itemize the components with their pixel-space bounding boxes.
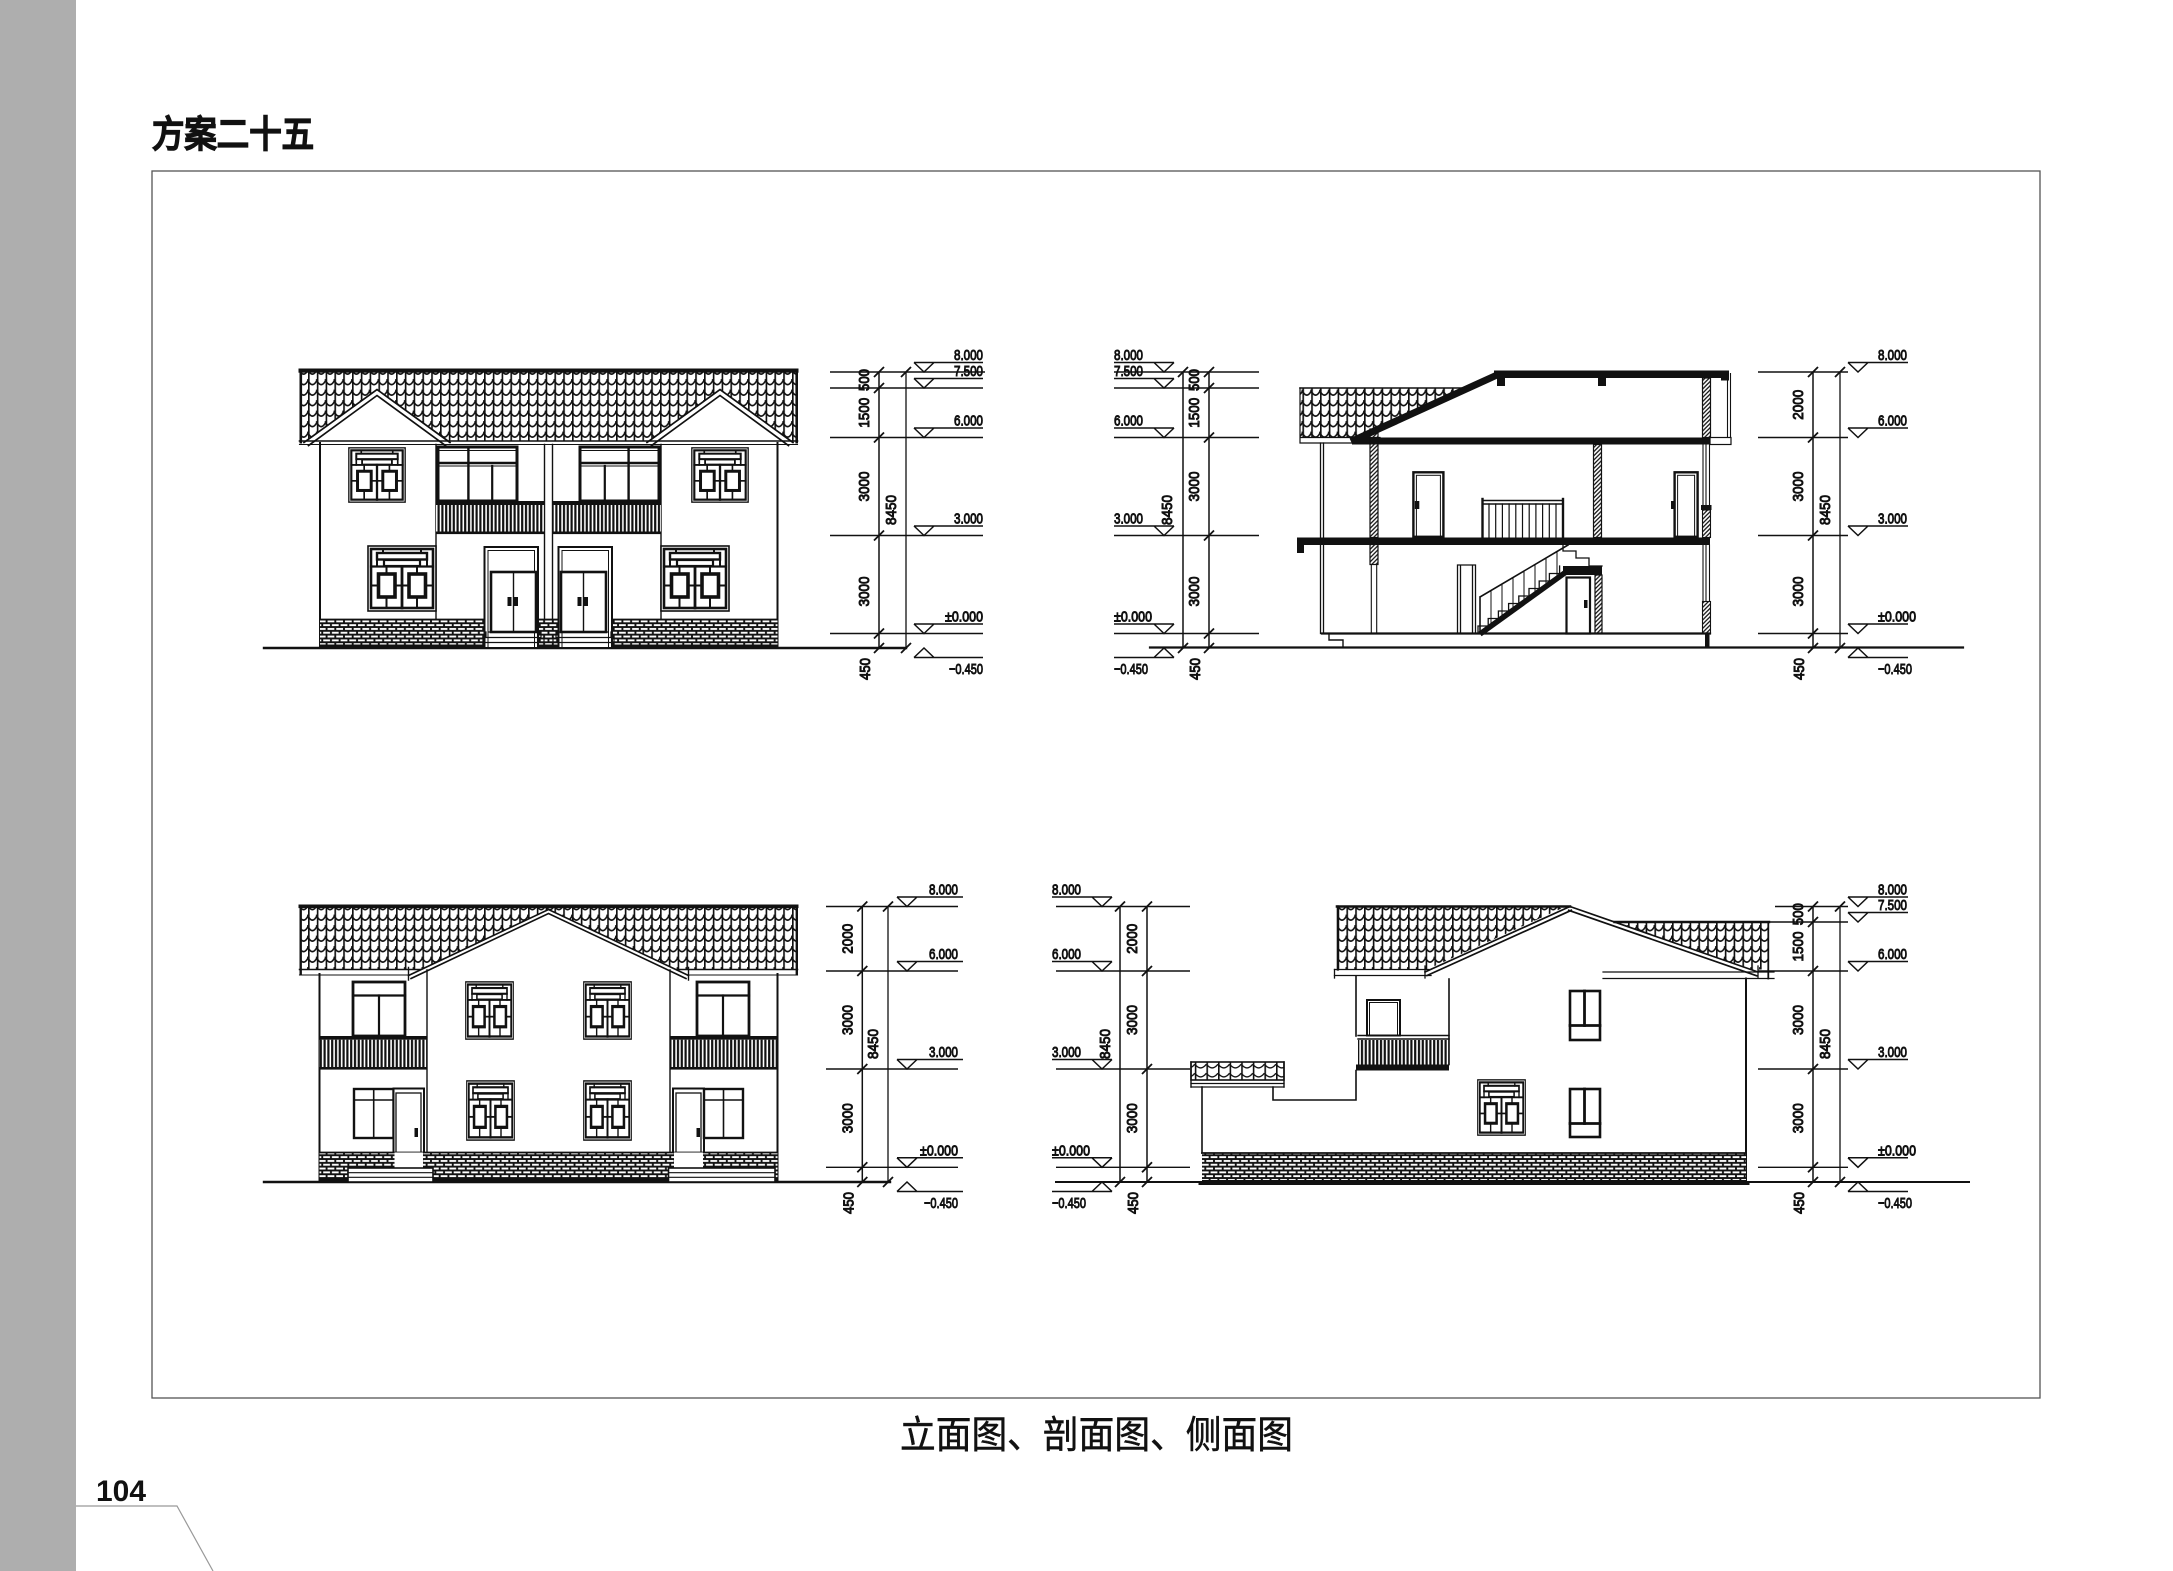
svg-text:6.000: 6.000 xyxy=(1878,946,1907,963)
svg-text:±0.000: ±0.000 xyxy=(1878,609,1916,626)
svg-text:−0.450: −0.450 xyxy=(949,661,983,678)
svg-text:450: 450 xyxy=(1791,658,1808,680)
svg-text:450: 450 xyxy=(840,1192,857,1214)
svg-text:8.000: 8.000 xyxy=(1052,882,1081,899)
svg-text:−0.450: −0.450 xyxy=(1114,661,1148,678)
svg-text:3000: 3000 xyxy=(1124,1005,1141,1035)
svg-text:3000: 3000 xyxy=(839,1005,856,1035)
svg-text:3.000: 3.000 xyxy=(1052,1044,1081,1061)
svg-text:1500: 1500 xyxy=(1186,398,1203,428)
svg-text:3000: 3000 xyxy=(1790,472,1807,502)
svg-text:104: 104 xyxy=(96,1475,146,1508)
svg-text:3000: 3000 xyxy=(856,577,873,607)
svg-text:3000: 3000 xyxy=(1790,577,1807,607)
svg-text:8450: 8450 xyxy=(1817,1029,1834,1059)
svg-text:−0.450: −0.450 xyxy=(1878,661,1912,678)
svg-text:500: 500 xyxy=(1186,369,1203,391)
svg-text:立面图、剖面图、侧面图: 立面图、剖面图、侧面图 xyxy=(900,1415,1293,1457)
svg-text:450: 450 xyxy=(857,658,874,680)
svg-text:8450: 8450 xyxy=(1817,495,1834,525)
svg-text:7.500: 7.500 xyxy=(1114,363,1143,380)
svg-text:1500: 1500 xyxy=(1790,932,1807,962)
svg-text:6.000: 6.000 xyxy=(1878,413,1907,430)
svg-text:7.500: 7.500 xyxy=(1878,897,1907,914)
svg-text:8450: 8450 xyxy=(1097,1029,1114,1059)
svg-text:−0.450: −0.450 xyxy=(924,1195,958,1212)
svg-text:8450: 8450 xyxy=(883,495,900,525)
svg-text:−0.450: −0.450 xyxy=(1878,1195,1912,1212)
svg-text:8.000: 8.000 xyxy=(954,347,983,364)
svg-text:−0.450: −0.450 xyxy=(1052,1195,1086,1212)
svg-text:8.000: 8.000 xyxy=(1878,347,1907,364)
svg-text:1500: 1500 xyxy=(856,398,873,428)
svg-text:450: 450 xyxy=(1125,1192,1142,1214)
svg-text:±0.000: ±0.000 xyxy=(1114,609,1152,626)
svg-text:2000: 2000 xyxy=(1124,924,1141,954)
svg-text:±0.000: ±0.000 xyxy=(920,1142,958,1159)
svg-text:3.000: 3.000 xyxy=(954,511,983,528)
svg-text:3.000: 3.000 xyxy=(1878,1044,1907,1061)
svg-text:500: 500 xyxy=(1790,903,1807,925)
svg-text:±0.000: ±0.000 xyxy=(1878,1142,1916,1159)
svg-text:8.000: 8.000 xyxy=(1114,347,1143,364)
svg-text:3000: 3000 xyxy=(1186,472,1203,502)
svg-text:3.000: 3.000 xyxy=(1114,511,1143,528)
svg-text:3000: 3000 xyxy=(1790,1005,1807,1035)
svg-text:3000: 3000 xyxy=(856,472,873,502)
svg-text:6.000: 6.000 xyxy=(1114,413,1143,430)
svg-text:±0.000: ±0.000 xyxy=(1052,1142,1090,1159)
svg-text:3000: 3000 xyxy=(1124,1103,1141,1133)
svg-text:±0.000: ±0.000 xyxy=(945,609,983,626)
svg-text:450: 450 xyxy=(1791,1192,1808,1214)
svg-text:6.000: 6.000 xyxy=(954,413,983,430)
svg-text:6.000: 6.000 xyxy=(929,946,958,963)
svg-text:8.000: 8.000 xyxy=(929,882,958,899)
svg-text:8450: 8450 xyxy=(865,1029,882,1059)
svg-text:3.000: 3.000 xyxy=(1878,511,1907,528)
svg-text:3.000: 3.000 xyxy=(929,1044,958,1061)
svg-text:6.000: 6.000 xyxy=(1052,946,1081,963)
svg-text:3000: 3000 xyxy=(839,1103,856,1133)
svg-text:3000: 3000 xyxy=(1186,577,1203,607)
svg-text:3000: 3000 xyxy=(1790,1103,1807,1133)
svg-text:450: 450 xyxy=(1187,658,1204,680)
svg-text:500: 500 xyxy=(856,369,873,391)
svg-text:2000: 2000 xyxy=(839,924,856,954)
svg-text:8450: 8450 xyxy=(1159,495,1176,525)
svg-text:8.000: 8.000 xyxy=(1878,882,1907,899)
svg-text:2000: 2000 xyxy=(1790,390,1807,420)
svg-text:7.500: 7.500 xyxy=(954,363,983,380)
svg-text:方案二十五: 方案二十五 xyxy=(152,114,314,155)
